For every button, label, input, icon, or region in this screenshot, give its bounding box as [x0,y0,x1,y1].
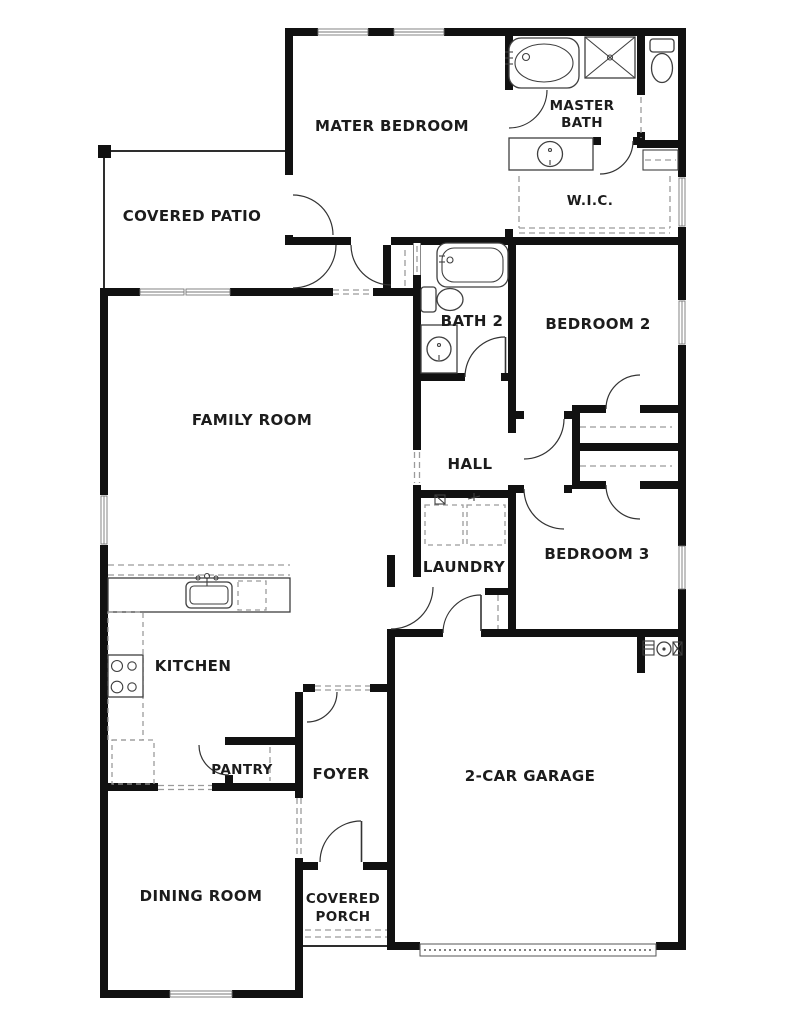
window [318,29,368,35]
label-master-bath: MASTERBATH [550,98,615,131]
floor-plan-svg: MATER BEDROOM MASTERBATH W.I.C. COVERED … [0,0,791,1024]
garage-door [420,944,656,956]
door-arc-closet2 [606,375,640,409]
room-labels: MATER BEDROOM MASTERBATH W.I.C. COVERED … [123,98,651,925]
door-arc-closet3 [606,485,640,519]
window [394,29,444,35]
toilet-icon [421,287,463,312]
door-arc-wic [600,141,633,174]
door-arc-bedroom3 [524,489,564,529]
door-arc-foyer-closet [307,692,337,722]
walls [100,28,686,998]
door-arc-front-door [320,821,361,862]
label-bath2: BATH 2 [441,312,504,330]
label-hall: HALL [448,455,493,473]
label-garage: 2-CAR GARAGE [465,767,596,785]
vanity-sink-icon [421,325,457,373]
garage-fixtures [420,641,682,956]
water-heater-icon [643,641,682,656]
label-laundry: LAUNDRY [423,558,506,576]
laundry-fixtures [425,493,505,545]
door-arc-patio-to-bedroom [293,195,333,235]
label-kitchen: KITCHEN [155,657,232,675]
window [186,289,230,295]
door-arc-patio-to-family [293,245,336,288]
window [679,178,685,226]
door-arc-bedroom2 [524,419,564,459]
vanity-sink-icon [509,138,593,170]
door-arc-garage-entry [443,595,481,633]
label-master-bedroom: MATER BEDROOM [315,117,469,135]
door-arc-kitchen-laundry [391,587,433,629]
door-arc-bath2 [465,337,505,377]
bath2-fixtures [421,243,508,373]
label-pantry: PANTRY [211,762,272,778]
window [679,301,685,344]
refrigerator-icon [112,740,154,784]
label-wic: W.I.C. [567,193,614,209]
floor-plan: MATER BEDROOM MASTERBATH W.I.C. COVERED … [0,0,791,1024]
shower-icon [585,37,635,78]
label-covered-porch: COVEREDPORCH [306,891,380,925]
bathtub-icon [437,243,508,287]
bathtub-icon [505,38,579,88]
window [140,289,184,295]
dryer-icon [467,505,505,545]
label-covered-patio: COVERED PATIO [123,207,262,225]
toilet-icon [650,39,674,83]
label-family-room: FAMILY ROOM [192,411,312,429]
window [170,991,232,997]
window [101,496,107,544]
washer-icon [425,505,463,545]
door-arc-master-bath [509,90,547,128]
label-foyer: FOYER [312,765,369,783]
range-icon [108,655,143,697]
label-bedroom2: BEDROOM 2 [545,315,650,333]
kitchen-island [108,574,290,613]
window [679,546,685,589]
covered-porch-outline [303,930,387,946]
label-dining-room: DINING ROOM [140,887,263,905]
linen-closet [643,150,678,170]
label-bedroom3: BEDROOM 3 [544,545,649,563]
